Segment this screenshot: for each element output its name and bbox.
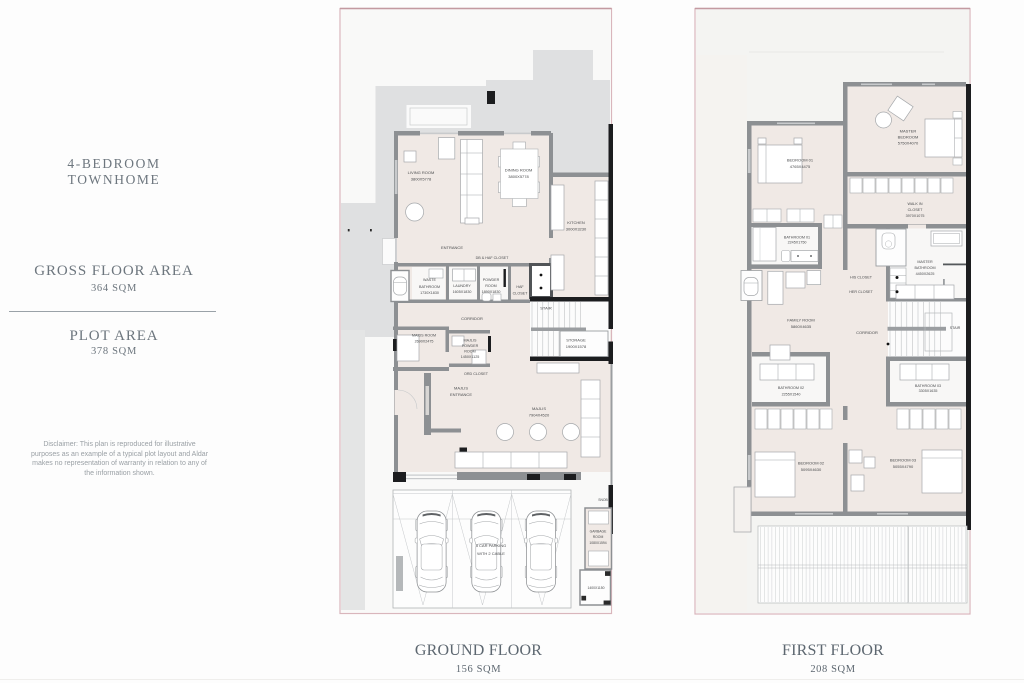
svg-text:BEDROOM 01: BEDROOM 01 (787, 158, 814, 163)
svg-text:POWDER: POWDER (483, 278, 500, 282)
svg-text:BEDROOM 03: BEDROOM 03 (890, 458, 917, 463)
svg-text:ROOM: ROOM (464, 350, 475, 354)
svg-text:BATHROOM 03: BATHROOM 03 (915, 384, 941, 388)
svg-text:CLOSET: CLOSET (908, 208, 924, 212)
svg-text:3000X3230: 3000X3230 (566, 227, 587, 232)
svg-text:2690X2475: 2690X2475 (415, 340, 434, 344)
svg-text:LIVING ROOM: LIVING ROOM (408, 170, 435, 175)
svg-text:1400X1150: 1400X1150 (587, 586, 604, 590)
svg-text:CORRIDOR: CORRIDOR (856, 330, 878, 335)
svg-text:BATHROOM 01: BATHROOM 01 (784, 236, 810, 240)
svg-text:DB & HAF CLOSET: DB & HAF CLOSET (476, 256, 510, 260)
svg-text:MAJLIS: MAJLIS (464, 339, 477, 343)
svg-text:MAJLIS: MAJLIS (532, 406, 546, 411)
svg-text:LAUNDRY: LAUNDRY (453, 284, 471, 288)
svg-text:1730X1830: 1730X1830 (420, 291, 439, 295)
svg-text:3305X1635: 3305X1635 (919, 389, 938, 393)
svg-text:ORD CLOSET: ORD CLOSET (464, 372, 489, 376)
svg-text:2245X1750: 2245X1750 (788, 241, 807, 245)
svg-text:1890X1830: 1890X1830 (482, 290, 501, 294)
svg-text:STAIR: STAIR (950, 326, 961, 330)
svg-text:MASTER: MASTER (900, 129, 917, 134)
svg-text:WALK IN: WALK IN (907, 202, 922, 206)
svg-text:ENTRANCE: ENTRANCE (441, 245, 463, 250)
svg-text:BATHROOM: BATHROOM (914, 266, 935, 270)
svg-text:4765X4475: 4765X4475 (790, 164, 811, 169)
svg-text:HAF: HAF (516, 285, 524, 289)
svg-text:STAIR: STAIR (540, 306, 552, 311)
svg-text:3 CAR PARKING: 3 CAR PARKING (476, 543, 507, 548)
svg-text:ENTRANCE: ENTRANCE (450, 392, 472, 397)
svg-text:5750X4070: 5750X4070 (898, 141, 919, 146)
svg-text:5860X4635: 5860X4635 (791, 324, 812, 329)
svg-text:CLOSET: CLOSET (513, 292, 529, 296)
svg-text:ROOM: ROOM (593, 535, 604, 539)
svg-text:5055X4790: 5055X4790 (893, 464, 914, 469)
svg-text:3970X1075: 3970X1075 (906, 214, 925, 218)
svg-text:WITH 2 CABLE: WITH 2 CABLE (477, 551, 505, 556)
svg-text:MAJLIS: MAJLIS (454, 386, 468, 391)
svg-text:GARBAGE: GARBAGE (590, 530, 608, 534)
svg-text:SNOB: SNOB (598, 498, 608, 502)
svg-text:CORRIDOR: CORRIDOR (461, 316, 483, 321)
svg-text:4450X2625: 4450X2625 (916, 272, 935, 276)
svg-text:WASTE: WASTE (423, 278, 437, 282)
svg-text:7904X4520: 7904X4520 (529, 413, 550, 418)
svg-text:POWDER: POWDER (462, 344, 479, 348)
svg-text:ROOM: ROOM (485, 284, 496, 288)
svg-text:3800X5778: 3800X5778 (411, 177, 432, 182)
svg-text:DINING ROOM: DINING ROOM (505, 168, 533, 173)
svg-text:5095X4630: 5095X4630 (801, 467, 822, 472)
svg-text:BEDROOM: BEDROOM (898, 135, 919, 140)
svg-text:HER CLOSET: HER CLOSET (849, 290, 873, 294)
svg-text:1605X1830: 1605X1830 (453, 290, 472, 294)
svg-text:BEDROOM 02: BEDROOM 02 (798, 461, 825, 466)
svg-text:2255X1540: 2255X1540 (782, 393, 801, 397)
svg-text:MASTER: MASTER (917, 260, 933, 264)
svg-text:1900X1578: 1900X1578 (566, 344, 587, 349)
svg-text:BATHROOM: BATHROOM (419, 285, 440, 289)
svg-text:STORAGE: STORAGE (566, 338, 586, 343)
svg-text:FAMILY ROOM: FAMILY ROOM (787, 318, 814, 323)
svg-text:BATHROOM 02: BATHROOM 02 (778, 386, 804, 390)
svg-text:3800X5778: 3800X5778 (508, 174, 529, 179)
svg-text:MAIDS ROOM: MAIDS ROOM (412, 334, 436, 338)
svg-text:KITCHEN: KITCHEN (567, 220, 585, 225)
svg-text:HIS CLOSET: HIS CLOSET (850, 276, 873, 280)
svg-text:1080X1594: 1080X1594 (589, 541, 606, 545)
svg-text:1450X1125: 1450X1125 (461, 355, 480, 359)
